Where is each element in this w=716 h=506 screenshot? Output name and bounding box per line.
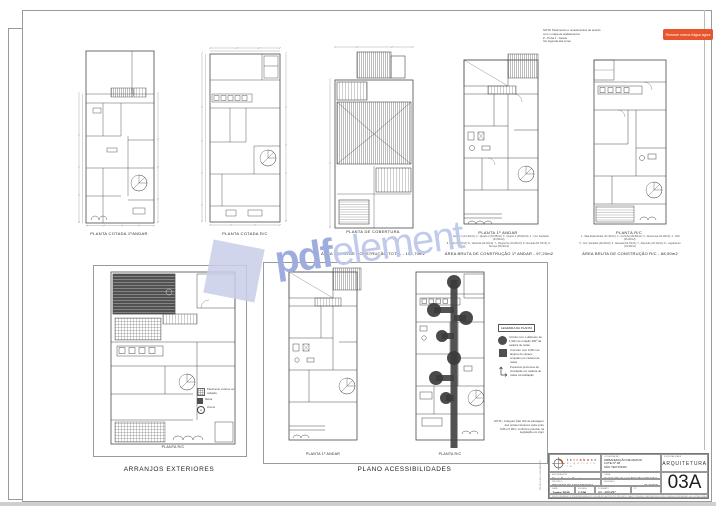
arranjos-legend-3: Árvore [207,406,215,410]
logo-subtitle: a r q u i t e t u r a [567,462,598,468]
acessibilidades-title: PLANO ACESSIBILIDADES [263,466,546,473]
sheet-number: 03A [661,472,708,494]
titleblock-format-cell: FORMATO A3 - 420x297 [595,486,631,494]
fold-line-right [704,10,705,450]
arranjos-title: ARRANJOS EXTERIORES [93,466,245,473]
floor-plan-acess-1andar [281,266,365,455]
plan5-legend-line2: 5 - Inst. Sanitária (02,30m2); 6 - Escad… [576,242,684,249]
titleblock-logo-cell: t e r r a b a s e a r q u i t e t u r a [549,454,601,472]
arranjos-legend-2: Relva [205,398,212,402]
titleblock-number-cell: Nº [631,486,661,494]
title-block: t e r r a b a s e a r q u i t e t u r a … [548,453,709,499]
titleblock-side-text: PROJETO DE LICENCIAMENTO [540,453,547,497]
titleblock-disclaimer: ESTE DESENHO É PROPRIEDADE EXCLUSIVA DO … [549,494,708,498]
disclaimer-text: ESTE DESENHO É PROPRIEDADE EXCLUSIVA DO … [552,495,705,498]
plan4-area-note: ÁREA BRUTA DE CONSTRUÇÃO 1º ANDAR - 97,2… [444,251,554,256]
tree-icon: A [197,406,205,414]
specialty-value: ARQUITETURA [664,459,705,469]
plan3-caption: PLANTA DE COBERTURA [327,229,419,234]
acess-legend-1: Círculo com o diâmetro de 1,50m de rotaç… [509,336,542,347]
acess-note-line2: 0,80 e 0,90m, conforme previsto na legis… [494,428,544,436]
titleblock-work-cell: OBRA Construção de uma Moradia Unifamili… [601,472,661,479]
fold-tick-bottom [8,499,22,500]
plan4-room-legend: 1 - Quarto 1 (12,40m2); 2 - Quarto 2 (10… [444,235,554,248]
plan3-area-note: ÁREA BRUTA DE CONSTRUÇÃO TOTAL - 198,70m… [321,251,425,256]
rotation-circle-icon [498,336,507,345]
floor-plan-cotada-1andar [73,48,165,233]
paving-swatch-icon [197,388,205,396]
location-line3: SÃO TEOTÓNIO [604,466,658,470]
titleblock-date-cell: DATA Junho 2020 [549,486,575,494]
plan1-caption: PLANTA COTADA 1ºANDAR [73,231,165,236]
titleblock-location-cell: LOCALIZAÇÃO URBANIZAÇÃO DE MATOS LOTE Nº… [601,454,661,472]
fold-tick-top [8,28,22,29]
plan4-nota: NOTA: Pavimentos e revestimentos de acor… [543,29,611,44]
acess-note: NOTA - A largura (vão útil) de passagem … [494,420,544,435]
nota-line4: Ver legenda das cores [543,40,611,44]
floor-plan-arranjos [103,270,243,453]
plan4-legend-line2: 5 - Hall (03,20m2); 6 - Varanda (02,40m2… [444,242,554,249]
acess-legend-2: Corredor com 0,90m de largura do espaço … [510,349,542,364]
floor-plan-acess-rc [408,266,492,455]
arranjos-legend: Pavimento exterior em calçada Relva A Ár… [197,388,243,414]
floor-plan-cobertura [327,44,419,237]
floor-plan-cotada-rc [196,46,294,233]
plan2-caption: PLANTA COTADA R/C [196,231,294,236]
drawing-sheet: Remover marca d'água agora [0,0,716,502]
acess-legend-3: Possíveis percursos de circulação em cad… [510,366,542,377]
plan5-room-legend: 1 - Sala Estar/Jantar (21,40m2); 2 - Coz… [576,235,684,248]
titleblock-client-cell: REQUERENTE Maria Duarte Ferreira [549,472,601,479]
grass-swatch-icon [197,398,203,404]
number-label: Nº [634,488,658,491]
titleblock-scale-cell: ESCALA 1:100 [575,486,595,494]
acess-legend: LEGENDA DA PLANTA Círculo com o diâmetro… [496,316,544,380]
acess-legend-title: LEGENDA DA PLANTA [498,324,535,332]
fold-line-left [8,28,9,500]
acess-plan2-caption: PLANTA R/C [408,452,492,456]
titleblock-project-cell: PROJETO PROJETO DE ARQUITETURA [549,479,601,486]
titleblock-drawing-cell: DESENHO PLANTAS [601,479,661,486]
remove-watermark-label: Remover marca d'água agora [666,33,711,37]
remove-watermark-button[interactable]: Remover marca d'água agora [663,29,713,40]
floor-plan-1andar [452,52,544,235]
arranjos-plan-caption: PLANTA R/C [103,445,243,449]
plan5-area-note: ÁREA BRUTA DE CONSTRUÇÃO R/C - 88,50m2 [576,251,684,256]
company-logo-icon [552,457,565,470]
acess-plan1-caption: PLANTA 1º ANDAR [281,452,365,456]
arranjos-legend-1: Pavimento exterior em calçada [207,388,243,396]
floor-plan-rc [584,52,674,235]
corridor-square-icon [499,349,507,357]
titleblock-specialty-cell: ESPECIALIDADE ARQUITETURA [661,454,708,472]
path-arrow-icon [498,366,508,378]
